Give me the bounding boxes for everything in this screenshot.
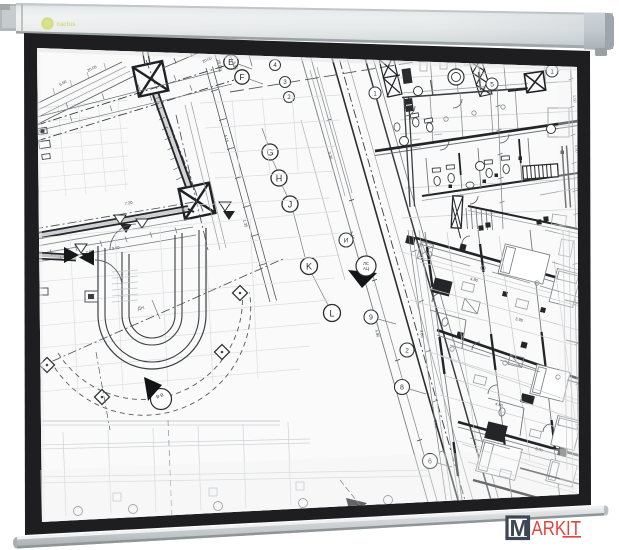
svg-text:АЦ: АЦ xyxy=(363,266,370,271)
svg-text:J: J xyxy=(288,200,293,210)
svg-text:K: K xyxy=(306,262,312,272)
svg-text:И: И xyxy=(344,238,349,245)
svg-text:H: H xyxy=(276,174,283,184)
svg-text:F: F xyxy=(239,72,244,82)
svg-text:8: 8 xyxy=(400,385,404,392)
svg-text:5: 5 xyxy=(490,82,494,89)
svg-text:2: 2 xyxy=(405,348,409,355)
svg-text:9: 9 xyxy=(369,315,373,322)
svg-text:cactus: cactus xyxy=(57,22,77,28)
svg-text:M: M xyxy=(510,515,529,541)
svg-text:L: L xyxy=(329,309,334,319)
